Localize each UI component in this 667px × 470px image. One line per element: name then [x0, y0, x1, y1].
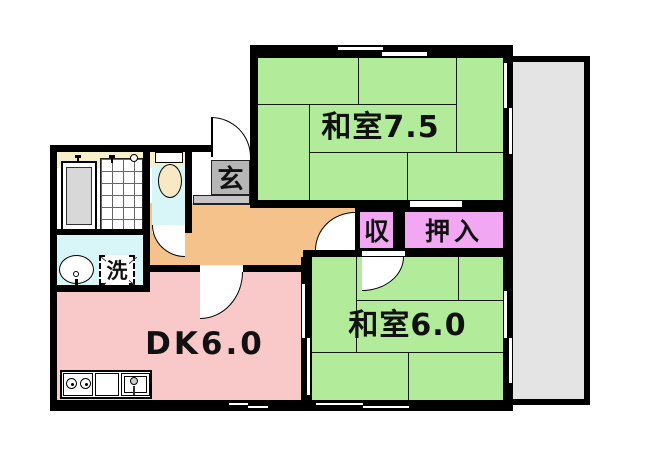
window-balcony-75-lower — [508, 107, 513, 155]
sliding-door-dk-60-upper — [301, 283, 306, 339]
sink-faucet — [130, 377, 138, 385]
laundry-label: 洗 — [106, 255, 129, 285]
wall-bath-bottom — [57, 229, 143, 235]
entrance-door-swing — [211, 117, 251, 157]
window-top-upper — [337, 46, 384, 51]
fusuma-washitsu75 — [410, 200, 462, 208]
genkan-label: 玄 — [217, 159, 243, 196]
wall-washitsu60-top — [303, 250, 513, 257]
window-top-lower — [381, 51, 428, 57]
counter-middle — [95, 373, 119, 396]
sliding-door-dk-60-lower — [306, 337, 311, 396]
oshiire-label: 押入 — [425, 212, 483, 248]
wall-washitsu75-left — [250, 45, 258, 208]
wall-toilet-right — [185, 152, 192, 233]
washbasin-drain — [73, 271, 79, 277]
genkan-step — [193, 195, 250, 205]
sink-faucet-stem — [133, 386, 135, 395]
floor-plan: 洗 玄 収 押入 — [0, 0, 667, 470]
tatami-line — [408, 352, 409, 400]
entrance-door-leaf — [211, 117, 213, 157]
balcony-wall-top — [511, 56, 590, 62]
window-dk-bottom-lower — [247, 405, 269, 409]
window-balcony-60-lower — [508, 337, 513, 384]
washitsu-7-5-text: 和室7.5 — [321, 102, 439, 146]
tatami-line — [407, 152, 408, 200]
laundry-pan: 洗 — [99, 255, 135, 285]
bath-faucet-stem — [111, 158, 113, 163]
shower-icon — [130, 154, 138, 162]
storage-label: 収 — [364, 212, 389, 248]
dk-text: DK6.0 — [145, 326, 265, 362]
tatami-line — [358, 58, 359, 104]
wall-bottom-main — [50, 400, 513, 411]
stove-burner-dot-right — [85, 383, 88, 386]
window-60-bottom-upper — [315, 402, 364, 406]
window-balcony-75-upper — [503, 62, 508, 109]
toilet-bowl — [158, 164, 182, 198]
dk-door-opening — [200, 265, 243, 272]
genkan-floor: 玄 — [211, 160, 250, 195]
balcony-wall-bottom — [511, 399, 590, 405]
stove-burner-dot-left — [71, 383, 74, 386]
bath-tile-floor — [100, 158, 143, 230]
tub-faucet-stem — [77, 158, 79, 163]
bathtub-inner — [66, 167, 92, 225]
closet-oshiire: 押入 — [405, 212, 503, 248]
wall-washitsu75-bottom — [250, 200, 513, 208]
window-balcony-60-upper — [503, 290, 508, 339]
washitsu-6-0-text: 和室6.0 — [348, 300, 466, 344]
washitsu-7-5-label: 和室7.5 — [258, 104, 503, 144]
door-opening-washitsu60 — [362, 250, 405, 257]
dk-label: DK6.0 — [135, 326, 275, 362]
tatami-line — [458, 257, 459, 300]
window-60-bottom-lower — [362, 405, 410, 409]
tatami-line — [309, 152, 503, 153]
wall-washroom-bottom — [50, 285, 150, 292]
window-dk-bottom-upper — [228, 402, 249, 406]
balcony — [513, 62, 584, 399]
toilet-tank — [155, 152, 183, 163]
washitsu-6-0-label: 和室6.0 — [312, 303, 503, 341]
wall-outer-left — [50, 145, 57, 411]
closet-storage: 収 — [360, 212, 393, 248]
balcony-wall-right — [584, 56, 590, 405]
